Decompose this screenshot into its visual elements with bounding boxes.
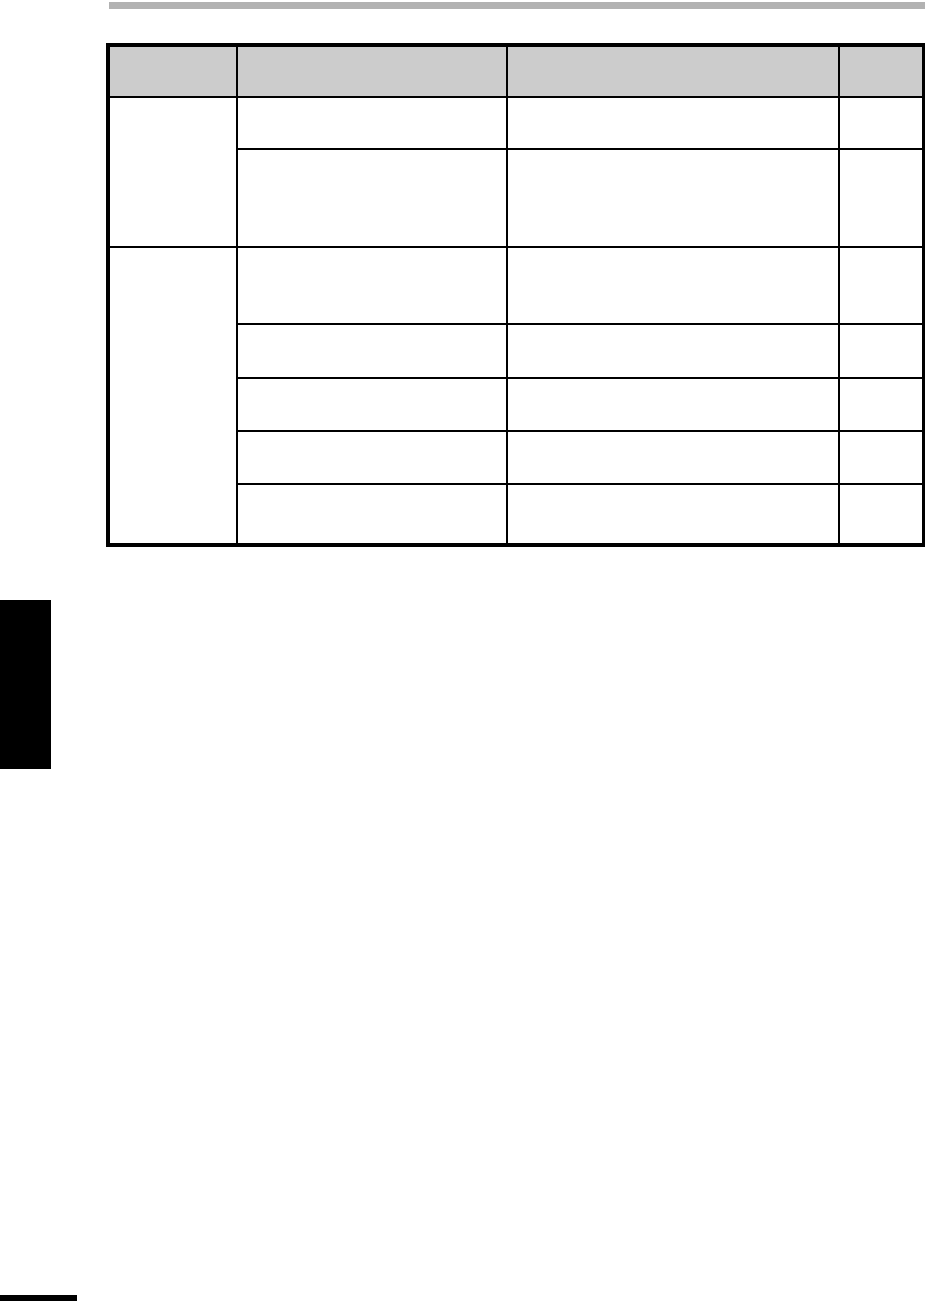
table-header-cell-1 bbox=[108, 45, 237, 97]
table-cell bbox=[839, 149, 924, 247]
table-cell bbox=[839, 378, 924, 431]
table-header-cell-3 bbox=[507, 45, 839, 97]
empty-reference-table bbox=[106, 43, 925, 547]
table-header-cell-2 bbox=[237, 45, 507, 97]
table-cell bbox=[237, 378, 507, 431]
document-page bbox=[0, 0, 925, 1304]
table-cell bbox=[237, 149, 507, 247]
footer-page-mark bbox=[0, 1295, 77, 1301]
table-cell bbox=[237, 97, 507, 149]
table-cell bbox=[237, 324, 507, 378]
page-header-accent-bar bbox=[109, 2, 925, 9]
table-cell bbox=[237, 247, 507, 324]
table-cell bbox=[237, 431, 507, 484]
table-header-row bbox=[108, 45, 924, 97]
table-row bbox=[108, 247, 924, 324]
table-cell bbox=[839, 324, 924, 378]
group2-label-cell bbox=[108, 247, 237, 545]
table-header-cell-4 bbox=[839, 45, 924, 97]
table-cell bbox=[507, 431, 839, 484]
table-cell bbox=[507, 324, 839, 378]
table-cell bbox=[507, 378, 839, 431]
table-row bbox=[108, 97, 924, 149]
table-cell bbox=[839, 484, 924, 545]
table-cell bbox=[839, 97, 924, 149]
table-cell bbox=[507, 484, 839, 545]
table-cell bbox=[507, 247, 839, 324]
table-cell bbox=[507, 149, 839, 247]
section-tab-marker bbox=[0, 600, 51, 769]
table-cell bbox=[237, 484, 507, 545]
table-cell bbox=[839, 247, 924, 324]
group1-label-cell bbox=[108, 97, 237, 247]
table-cell bbox=[839, 431, 924, 484]
table-cell bbox=[507, 97, 839, 149]
